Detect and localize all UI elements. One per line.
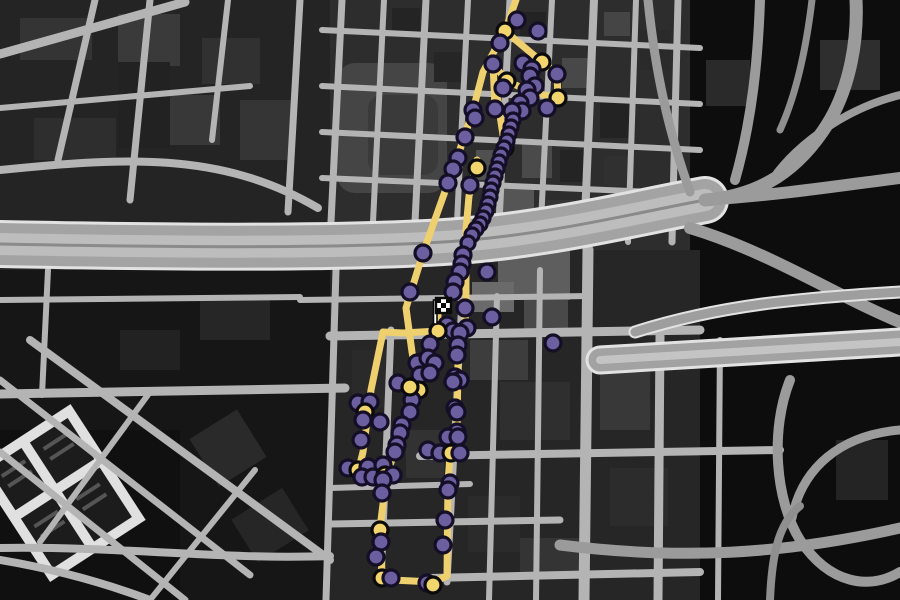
checkpoint-dot	[372, 414, 388, 430]
checkpoint-dot	[402, 284, 418, 300]
checkpoint-dot	[355, 412, 371, 428]
checkpoint-dot	[467, 110, 483, 126]
checkpoint-dot	[487, 101, 503, 117]
waypoint-dot	[402, 379, 418, 395]
checkpoint-dot	[353, 432, 369, 448]
checkpoint-dot	[440, 482, 456, 498]
checkpoint-dot	[422, 365, 438, 381]
checkpoint-dot	[450, 429, 466, 445]
checkpoint-dot	[435, 537, 451, 553]
checkpoint-dot	[452, 445, 468, 461]
city-map[interactable]	[0, 0, 900, 600]
checkpoint-dot	[374, 485, 390, 501]
checkpoint-dot	[437, 512, 453, 528]
waypoint-dot	[425, 577, 441, 593]
checkpoint-dot	[445, 374, 461, 390]
checkpoint-dot	[539, 100, 555, 116]
checkpoint-dot	[368, 549, 384, 565]
checkpoint-dot	[449, 347, 465, 363]
checkpoint-dot	[462, 177, 478, 193]
checkpoint-dot	[457, 129, 473, 145]
waypoint-dot	[469, 160, 485, 176]
checkpoint-dot	[545, 335, 561, 351]
checkpoint-dot	[484, 309, 500, 325]
checkpoint-dot	[485, 56, 501, 72]
checkpoint-dot	[449, 404, 465, 420]
checkpoint-dot	[492, 35, 508, 51]
checkpoint-dot	[530, 23, 546, 39]
checkpoint-dot	[440, 175, 456, 191]
checkpoint-dot	[387, 444, 403, 460]
checkpoint-dot	[415, 245, 431, 261]
checkpoint-dot	[457, 300, 473, 316]
checkpoint-dot	[495, 80, 511, 96]
checkpoint-dot	[549, 66, 565, 82]
checkpoint-dot	[383, 570, 399, 586]
game-map-screen	[0, 0, 900, 600]
checkpoint-dot	[479, 264, 495, 280]
